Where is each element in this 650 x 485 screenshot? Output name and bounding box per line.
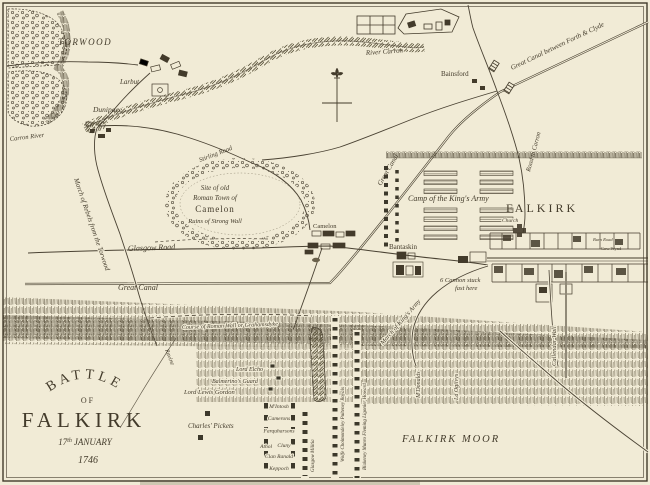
picket-post: [198, 435, 203, 440]
lewis-gordon-label: Lord Lewis Gordon: [183, 389, 235, 396]
great-canal-west-label: Great Canal: [118, 283, 159, 292]
title-year: 1746: [78, 455, 98, 466]
dunipace-label: Dunipace: [92, 105, 123, 114]
kings-camp-label: Camp of the King's Army: [408, 194, 489, 203]
falkirk-moor-label: FALKIRK MOOR: [401, 434, 500, 445]
clan-clanranald-label: Clan Ranald: [265, 454, 293, 460]
camelon-site-line2: Roman Town of: [192, 194, 238, 202]
callendar-wall-label: Callendar Wall: [551, 326, 558, 366]
burn-road-label: Burn Road: [593, 237, 613, 242]
bantaskin-label: Bantaskin: [389, 243, 417, 251]
picket-post: [205, 411, 210, 416]
larbert-label: Larbut: [119, 78, 140, 86]
title-falkirk: FALKIRK: [22, 408, 146, 432]
camelon-site-line4: Ruins of Strong Wall: [187, 218, 242, 225]
church-label: Church: [502, 218, 519, 224]
lord-elcho-label: Lord Elcho: [235, 367, 263, 373]
glasgow-militia-label: Glasgow Militia: [311, 439, 316, 472]
clan-farquharsons-label: Farquharsons: [263, 429, 295, 435]
government-line2-label: Blakeney Munro Fleming Ligonier Howard: [363, 383, 368, 470]
battle-of-falkirk-map: TORWOOD Larbut Dunipace Carron River Riv…: [0, 0, 650, 485]
athol-label: Athol: [259, 444, 272, 450]
charles-pickets-label: Charles' Pickets: [188, 422, 234, 430]
balmerino-label: Balmerino's Guard: [212, 379, 259, 385]
clan-cluny-label: Cluny: [277, 443, 291, 449]
title-date: 17thJANUARY: [58, 437, 112, 447]
title-of: OF: [81, 396, 95, 405]
cannon-note-line1: 6 Cannon stuck: [440, 277, 481, 284]
falkirk-town-label: FALKIRK: [506, 201, 578, 215]
mdonalds-label: M'Donalds: [416, 371, 422, 399]
torwood-label: TORWOOD: [58, 37, 112, 47]
bainsford-label: Bainsford: [441, 70, 469, 78]
clan-keppoch-label: Keppoch: [268, 466, 289, 472]
hedge-row: [386, 151, 642, 158]
government-line1-label: Wolfe Cholmondeley Pulteney Royals: [341, 387, 346, 462]
cannon-note-line2: fast here: [455, 285, 477, 292]
clan-camerons-label: Camerons: [268, 416, 290, 422]
cow-wynd-label: Cow Wynd: [601, 246, 622, 251]
glasgow-road-label: Glasgow Road: [128, 242, 177, 253]
camelon-village-label: Camelon: [313, 223, 337, 230]
clan-mcintosh-label: M'Intosh: [268, 404, 289, 410]
ogilvys-label: Ld Ogilvys: [454, 373, 460, 401]
camelon-site-line1: Site of old: [201, 184, 230, 192]
camelon-site-line3: Camelon: [195, 204, 235, 214]
